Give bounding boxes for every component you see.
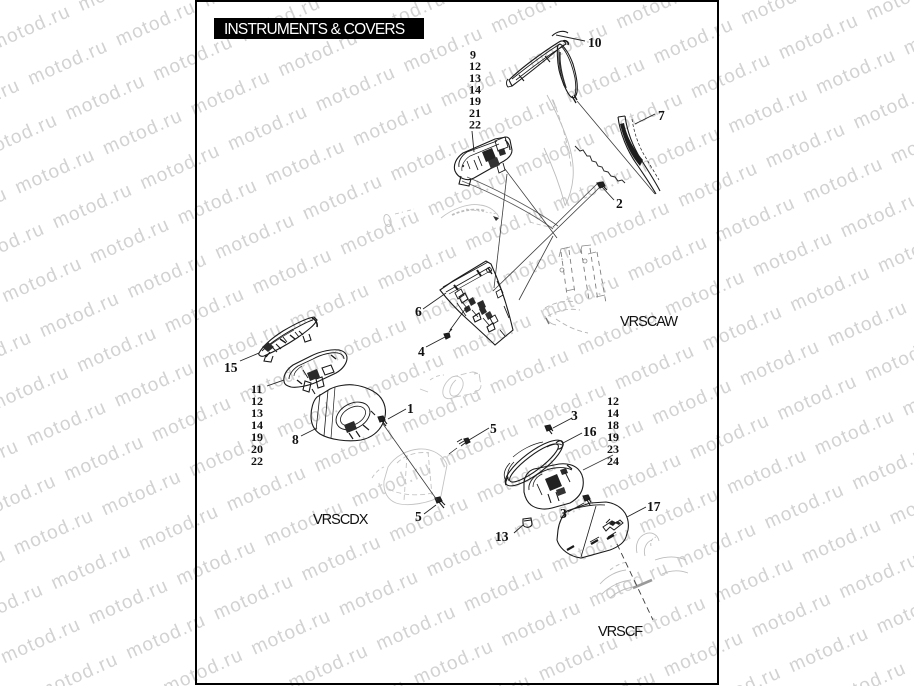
- svg-text:motod.ru: motod.ru: [0, 362, 73, 416]
- svg-text:motod.ru: motod.ru: [901, 6, 914, 60]
- svg-text:motod.ru: motod.ru: [711, 553, 798, 607]
- svg-text:motod.ru: motod.ru: [0, 110, 61, 164]
- svg-text:motod.ru: motod.ru: [0, 253, 86, 307]
- svg-text:motod.ru: motod.ru: [537, 271, 624, 325]
- svg-text:motod.ru: motod.ru: [74, 323, 161, 377]
- svg-text:motod.ru: motod.ru: [625, 232, 712, 286]
- svg-text:24: 24: [607, 454, 619, 468]
- svg-text:motod.ru: motod.ru: [0, 579, 47, 633]
- svg-text:motod.ru: motod.ru: [524, 379, 611, 433]
- svg-text:motod.ru: motod.ru: [886, 475, 914, 529]
- svg-text:motod.ru: motod.ru: [774, 371, 861, 425]
- svg-text:motod.ru: motod.ru: [300, 171, 387, 225]
- svg-text:8: 8: [292, 432, 299, 447]
- svg-text:motod.ru: motod.ru: [87, 214, 174, 268]
- svg-text:motod.ru: motod.ru: [800, 153, 887, 207]
- svg-text:motod.ru: motod.ru: [888, 114, 914, 168]
- svg-text:motod.ru: motod.ru: [75, 0, 162, 16]
- svg-text:motod.ru: motod.ru: [662, 266, 749, 320]
- svg-text:motod.ru: motod.ru: [487, 345, 574, 399]
- svg-text:VRSCAW: VRSCAW: [620, 314, 678, 330]
- svg-text:motod.ru: motod.ru: [410, 636, 497, 686]
- svg-text:motod.ru: motod.ru: [160, 645, 247, 686]
- svg-text:22: 22: [251, 454, 263, 468]
- svg-text:motod.ru: motod.ru: [386, 492, 473, 546]
- svg-text:motod.ru: motod.ru: [285, 640, 372, 686]
- svg-text:motod.ru: motod.ru: [425, 166, 512, 220]
- svg-text:motod.ru: motod.ru: [649, 375, 736, 429]
- svg-text:motod.ru: motod.ru: [849, 440, 914, 494]
- svg-text:motod.ru: motod.ru: [824, 297, 911, 351]
- svg-text:motod.ru: motod.ru: [225, 101, 312, 155]
- svg-text:motod.ru: motod.ru: [149, 392, 236, 446]
- svg-text:2: 2: [616, 196, 623, 211]
- svg-text:motod.ru: motod.ru: [173, 536, 260, 590]
- svg-text:motod.ru: motod.ru: [249, 245, 336, 299]
- svg-text:motod.ru: motod.ru: [48, 540, 135, 594]
- svg-text:5: 5: [490, 421, 497, 436]
- svg-text:7: 7: [658, 108, 665, 123]
- svg-text:motod.ru: motod.ru: [436, 419, 523, 473]
- svg-text:22: 22: [469, 118, 481, 132]
- svg-text:motod.ru: motod.ru: [262, 136, 349, 190]
- svg-text:motod.ru: motod.ru: [449, 310, 536, 364]
- svg-text:VRSCF: VRSCF: [598, 624, 643, 640]
- svg-text:motod.ru: motod.ru: [787, 262, 874, 316]
- svg-text:motod.ru: motod.ru: [287, 279, 374, 333]
- svg-text:5: 5: [415, 509, 422, 524]
- svg-text:motod.ru: motod.ru: [812, 406, 899, 460]
- svg-text:15: 15: [224, 360, 238, 375]
- svg-text:4: 4: [418, 344, 425, 359]
- svg-text:motod.ru: motod.ru: [475, 92, 562, 146]
- svg-text:motod.ru: motod.ru: [24, 397, 111, 451]
- svg-text:motod.ru: motod.ru: [748, 588, 835, 642]
- svg-text:motod.ru: motod.ru: [862, 332, 914, 386]
- svg-text:6: 6: [415, 304, 422, 319]
- svg-text:motod.ru: motod.ru: [750, 227, 837, 281]
- svg-text:motod.ru: motod.ru: [111, 358, 198, 412]
- svg-text:motod.ru: motod.ru: [761, 480, 848, 534]
- svg-text:motod.ru: motod.ru: [763, 119, 850, 173]
- svg-text:motod.ru: motod.ru: [312, 62, 399, 116]
- svg-text:motod.ru: motod.ru: [698, 662, 785, 686]
- svg-text:motod.ru: motod.ru: [0, 544, 9, 598]
- svg-text:motod.ru: motod.ru: [350, 97, 437, 151]
- svg-text:motod.ru: motod.ru: [0, 471, 60, 525]
- svg-text:motod.ru: motod.ru: [36, 288, 123, 342]
- svg-text:motod.ru: motod.ru: [136, 501, 223, 555]
- svg-text:motod.ru: motod.ru: [461, 562, 548, 616]
- svg-text:motod.ru: motod.ru: [324, 314, 411, 368]
- svg-text:motod.ru: motod.ru: [0, 1, 74, 55]
- svg-text:motod.ru: motod.ru: [361, 349, 448, 403]
- svg-text:motod.ru: motod.ru: [298, 532, 385, 586]
- svg-text:motod.ru: motod.ru: [737, 336, 824, 390]
- svg-text:3: 3: [560, 506, 567, 521]
- svg-text:motod.ru: motod.ru: [336, 566, 423, 620]
- svg-text:motod.ru: motod.ru: [498, 597, 585, 651]
- svg-text:motod.ru: motod.ru: [688, 49, 775, 103]
- svg-text:motod.ru: motod.ru: [223, 462, 310, 516]
- svg-text:motod.ru: motod.ru: [212, 210, 299, 264]
- svg-text:3: 3: [571, 408, 578, 423]
- svg-text:motod.ru: motod.ru: [613, 0, 700, 33]
- svg-text:motod.ru: motod.ru: [211, 571, 298, 625]
- svg-text:motod.ru: motod.ru: [899, 367, 914, 421]
- svg-text:motod.ru: motod.ru: [198, 679, 285, 686]
- svg-text:motod.ru: motod.ru: [823, 658, 910, 686]
- svg-text:motod.ru: motod.ru: [187, 66, 274, 120]
- svg-text:motod.ru: motod.ru: [499, 236, 586, 290]
- svg-text:motod.ru: motod.ru: [98, 466, 185, 520]
- svg-text:motod.ru: motod.ru: [699, 301, 786, 355]
- svg-text:motod.ru: motod.ru: [873, 584, 914, 638]
- svg-text:motod.ru: motod.ru: [85, 575, 172, 629]
- svg-text:motod.ru: motod.ru: [199, 318, 286, 372]
- svg-text:motod.ru: motod.ru: [775, 10, 862, 64]
- svg-text:motod.ru: motod.ru: [0, 327, 35, 381]
- svg-text:motod.ru: motod.ru: [374, 240, 461, 294]
- svg-text:motod.ru: motod.ru: [836, 549, 914, 603]
- svg-text:INSTRUMENTS & COVERS: INSTRUMENTS & COVERS: [224, 21, 405, 38]
- svg-text:motod.ru: motod.ru: [712, 193, 799, 247]
- svg-text:motod.ru: motod.ru: [637, 123, 724, 177]
- svg-text:motod.ru: motod.ru: [548, 523, 635, 577]
- svg-text:motod.ru: motod.ru: [0, 614, 84, 668]
- svg-text:motod.ru: motod.ru: [650, 14, 737, 68]
- svg-text:motod.ru: motod.ru: [12, 144, 99, 198]
- svg-text:motod.ru: motod.ru: [837, 188, 914, 242]
- svg-text:motod.ru: motod.ru: [724, 445, 811, 499]
- svg-text:motod.ru: motod.ru: [586, 558, 673, 612]
- svg-text:motod.ru: motod.ru: [248, 605, 335, 659]
- svg-text:motod.ru: motod.ru: [49, 179, 136, 233]
- svg-text:motod.ru: motod.ru: [124, 249, 211, 303]
- svg-text:motod.ru: motod.ru: [113, 0, 200, 51]
- svg-text:motod.ru: motod.ru: [600, 88, 687, 142]
- svg-text:13: 13: [495, 529, 509, 544]
- svg-text:motod.ru: motod.ru: [11, 505, 98, 559]
- svg-text:motod.ru: motod.ru: [875, 223, 914, 277]
- svg-text:motod.ru: motod.ru: [488, 0, 575, 38]
- svg-text:motod.ru: motod.ru: [738, 0, 825, 29]
- svg-text:motod.ru: motod.ru: [337, 205, 424, 259]
- svg-text:motod.ru: motod.ru: [61, 431, 148, 485]
- svg-text:motod.ru: motod.ru: [661, 627, 748, 681]
- svg-text:motod.ru: motod.ru: [674, 519, 761, 573]
- svg-text:motod.ru: motod.ru: [373, 601, 460, 655]
- svg-text:motod.ru: motod.ru: [35, 649, 122, 686]
- svg-text:motod.ru: motod.ru: [612, 340, 699, 394]
- svg-text:motod.ru: motod.ru: [863, 0, 914, 25]
- svg-text:motod.ru: motod.ru: [62, 71, 149, 125]
- svg-text:motod.ru: motod.ru: [0, 436, 22, 490]
- svg-text:motod.ru: motod.ru: [686, 410, 773, 464]
- svg-text:motod.ru: motod.ru: [25, 36, 112, 90]
- svg-text:motod.ru: motod.ru: [100, 105, 187, 159]
- svg-text:motod.ru: motod.ru: [0, 75, 24, 129]
- svg-text:motod.ru: motod.ru: [587, 197, 674, 251]
- svg-text:motod.ru: motod.ru: [813, 45, 900, 99]
- svg-text:10: 10: [588, 35, 602, 50]
- svg-text:motod.ru: motod.ru: [349, 458, 436, 512]
- svg-text:1: 1: [407, 401, 414, 416]
- svg-text:VRSCDX: VRSCDX: [313, 512, 369, 528]
- svg-text:motod.ru: motod.ru: [550, 162, 637, 216]
- svg-text:motod.ru: motod.ru: [137, 140, 224, 194]
- svg-text:16: 16: [583, 424, 597, 439]
- svg-text:motod.ru: motod.ru: [725, 84, 812, 138]
- svg-text:motod.ru: motod.ru: [0, 184, 11, 238]
- svg-text:motod.ru: motod.ru: [786, 623, 873, 677]
- svg-text:motod.ru: motod.ru: [850, 80, 914, 134]
- svg-text:motod.ru: motod.ru: [174, 175, 261, 229]
- svg-text:motod.ru: motod.ru: [162, 284, 249, 338]
- svg-text:motod.ru: motod.ru: [0, 218, 48, 272]
- svg-text:motod.ru: motod.ru: [150, 31, 237, 85]
- svg-text:17: 17: [647, 499, 661, 514]
- svg-text:motod.ru: motod.ru: [799, 514, 886, 568]
- svg-text:motod.ru: motod.ru: [274, 388, 361, 442]
